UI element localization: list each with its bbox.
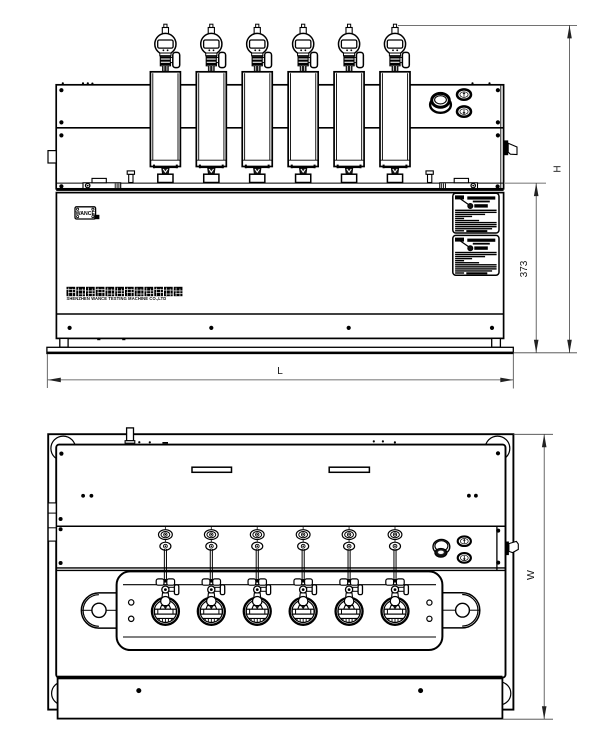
svg-text:SHENZHEN WANCE TESTING MACHINE: SHENZHEN WANCE TESTING MACHINE CO.,LTD	[67, 296, 167, 301]
svg-text:WANCE: WANCE	[76, 211, 96, 217]
svg-text:W: W	[525, 570, 537, 580]
svg-text:H: H	[553, 165, 564, 172]
svg-text:L: L	[277, 366, 283, 377]
svg-text:373: 373	[519, 260, 530, 277]
